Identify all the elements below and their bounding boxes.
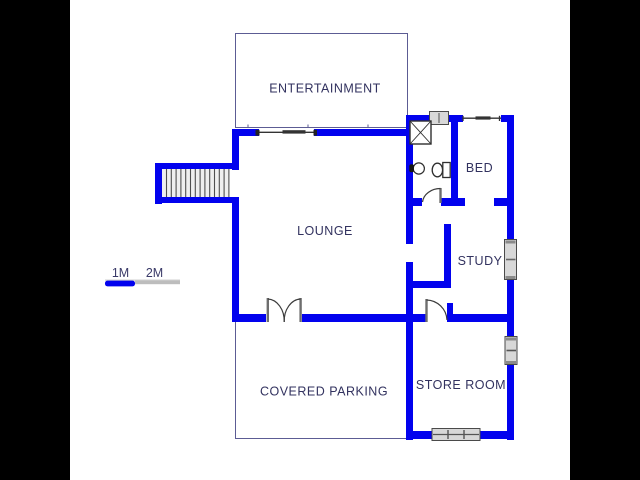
covered-parking-outline [236,322,407,439]
bed-label: BED [466,161,493,175]
store-room-window [505,337,517,365]
letterbox-right [570,0,640,480]
lounge-label: LOUNGE [297,224,353,238]
scale-label-1m: 1M [112,266,129,280]
toilet-icon [432,163,450,178]
scale-bar: 1M 2M [105,266,180,286]
covered-parking-label: COVERED PARKING [260,385,388,399]
shower-icon [410,121,431,144]
entertainment-room-outline [236,34,408,128]
double-door-icon [268,298,301,322]
scale-label-2m: 2M [146,266,163,280]
study-label: STUDY [458,254,503,268]
study-window [505,240,517,280]
store-room-door-icon [427,299,448,322]
staircase [155,163,238,204]
store-room-label: STORE ROOM [416,378,506,392]
floor-plan-canvas: 1M 2M ENTERTAINMENT LOUNGE BED STUDY STO… [0,0,640,480]
letterbox-left [0,0,70,480]
store-room-bottom-window [432,429,480,441]
entertainment-label: ENTERTAINMENT [269,82,381,96]
bathroom-door-icon [423,188,441,203]
scale-bar-blue-segment [105,281,135,287]
sliding-door-opening [256,130,318,136]
bathroom-window [430,112,449,125]
scale-bar-gray-segment [135,281,180,285]
bed-wall-opening [463,116,501,121]
